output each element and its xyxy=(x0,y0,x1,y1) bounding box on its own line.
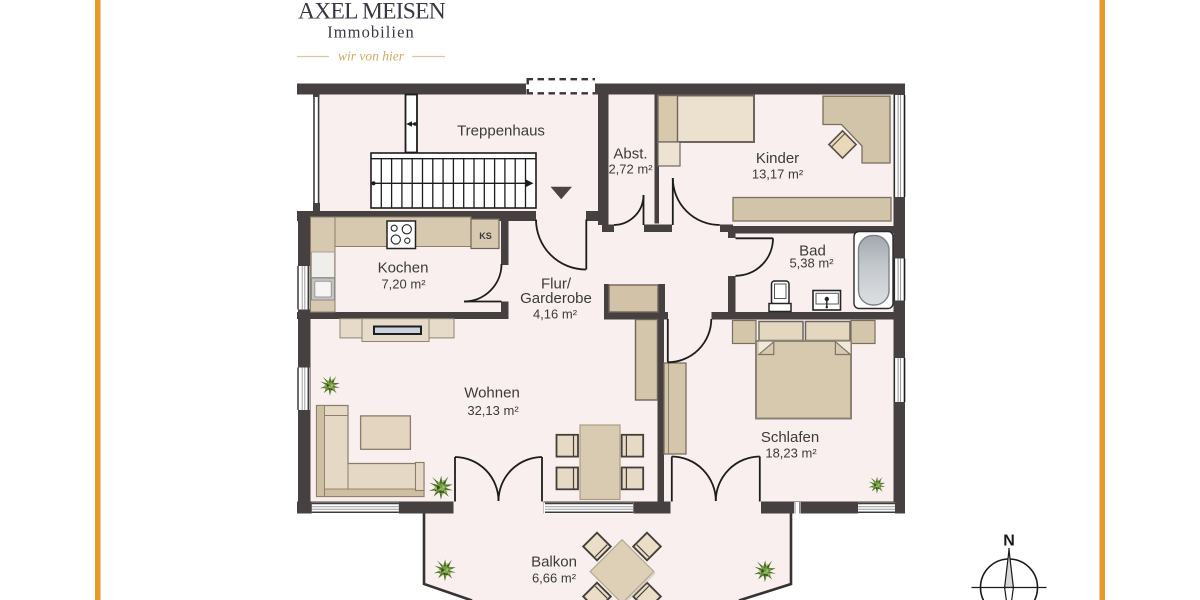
svg-text:5,38 m²: 5,38 m² xyxy=(789,256,834,271)
svg-text:Kochen: Kochen xyxy=(378,260,429,277)
svg-text:4,16 m²: 4,16 m² xyxy=(533,307,578,322)
svg-text:wir von hier: wir von hier xyxy=(338,49,405,64)
svg-text:32,13 m²: 32,13 m² xyxy=(467,403,519,418)
svg-text:13,17 m²: 13,17 m² xyxy=(752,167,804,182)
svg-text:N: N xyxy=(1003,533,1015,550)
svg-text:Immobilien: Immobilien xyxy=(327,23,415,42)
svg-text:18,23 m²: 18,23 m² xyxy=(765,446,817,461)
svg-text:Garderobe: Garderobe xyxy=(520,290,592,307)
svg-text:7,20 m²: 7,20 m² xyxy=(381,277,426,292)
svg-text:Schlafen: Schlafen xyxy=(761,429,819,446)
svg-text:6,66 m²: 6,66 m² xyxy=(532,571,577,586)
svg-text:Balkon: Balkon xyxy=(531,554,577,571)
svg-text:Wohnen: Wohnen xyxy=(464,385,520,402)
svg-text:2,72 m²: 2,72 m² xyxy=(608,162,653,177)
svg-text:Kinder: Kinder xyxy=(756,150,799,167)
svg-text:Abst.: Abst. xyxy=(613,146,647,163)
svg-text:AXEL MEISEN: AXEL MEISEN xyxy=(298,0,446,25)
svg-text:KS: KS xyxy=(479,231,492,241)
svg-text:Treppenhaus: Treppenhaus xyxy=(457,123,545,140)
